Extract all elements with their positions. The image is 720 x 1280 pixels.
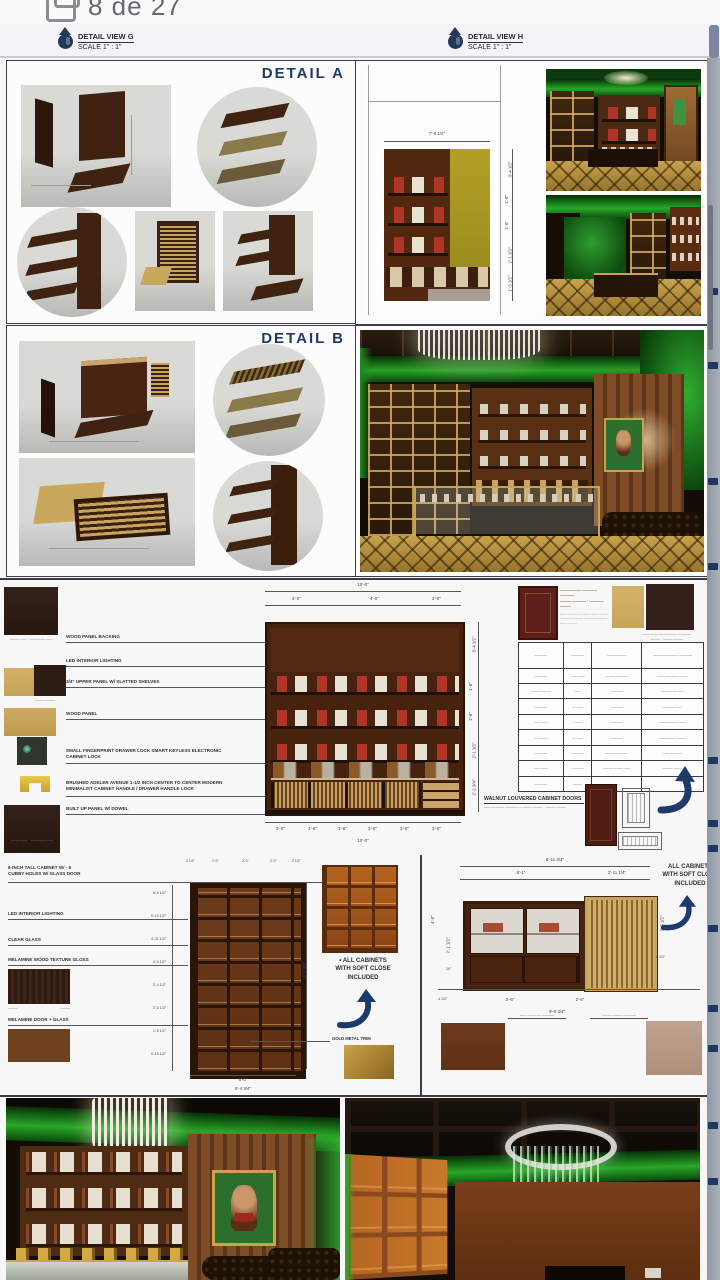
drawer-stack: [423, 782, 459, 808]
dim-label: 3'-4 1/2": [508, 161, 513, 177]
render-photo-bottom-right: [345, 1098, 700, 1280]
divider: [0, 56, 720, 58]
exploded-view-image: [135, 211, 215, 311]
soft-close-note: ALL CABINETS WITH SOFT CLOSE INCLUDED: [650, 863, 707, 888]
scroll-mark: [708, 820, 718, 827]
annotation: BRUSHED ADELER AVENUE 1-1/2 INCH CENTER …: [66, 780, 231, 792]
scroll-mark: [708, 478, 718, 485]
material-swatch: [4, 587, 58, 635]
annotation: MELAMINE WOOD TEXTURE GLOSS: [8, 957, 89, 963]
tall-cabinet-elevation: [190, 883, 306, 1079]
scroll-mark: [708, 1178, 718, 1185]
table-header: ——————: [592, 643, 642, 668]
swatch-caption-text: ———: [8, 1006, 18, 1011]
annotation: 6-INCH TALL CABINET W/ - 6 CUBBY HOLES W…: [8, 865, 168, 877]
table-header: ————: [519, 643, 564, 668]
chandelier: [92, 1098, 170, 1152]
annotation: WOOD PANEL BACKING: [66, 634, 256, 640]
dim-label: 6'-9 1/2": [126, 891, 166, 895]
material-swatch: [8, 1029, 70, 1062]
dim-label: 2'-2 3/4": [472, 779, 477, 795]
table-cell: ————— ———: [642, 730, 703, 744]
dim-label: 2'-6": [480, 997, 540, 1002]
table-header: ————: [564, 643, 593, 668]
annotation: BUILT UP PANEL W/ DOWEL: [66, 806, 256, 812]
dim-label: 3'-4 1/2": [472, 636, 477, 652]
table-cell: ——— ————: [592, 669, 642, 683]
bottom-elevation-band: 6-INCH TALL CABINET W/ - 6 CUBBY HOLES W…: [0, 855, 707, 1097]
pages-icon[interactable]: [46, 0, 76, 22]
scroll-mark: [708, 1005, 718, 1012]
table-cell: —————— ——: [642, 715, 703, 729]
low-cabinet-elevation: [463, 897, 651, 987]
scroll-mark: [708, 757, 718, 764]
annotation: CLEAR GLASS: [8, 937, 41, 943]
table-cell: ————— ——: [642, 684, 703, 698]
table-cell: ———— ——: [642, 699, 703, 713]
table-cell: —— ——: [519, 715, 564, 729]
dim-label: 0'-10 1/2": [126, 1052, 166, 1056]
dim-label: 4'-0": [292, 596, 301, 601]
dim-label: 10'-0": [265, 838, 461, 843]
scroll-mark: [708, 845, 718, 852]
table-cell: – ——: [564, 715, 593, 729]
middle-elevation-band: ——— —— · ————— —— ——— ——— ——— —— · —————…: [0, 578, 707, 857]
callout-label: WALNUT LOUVERED CABINET DOORS: [484, 796, 584, 804]
swatch-caption: ——— —— · ————— ——: [2, 838, 62, 843]
panel-detail-a: DETAIL A: [6, 60, 356, 324]
scroll-mark: [708, 1045, 718, 1052]
swatch-caption: —— ———— ———— — ——— ——— · ——— ———: [638, 632, 696, 642]
note-line: INCLUDED: [650, 880, 707, 888]
detail-view-scale: SCALE 1" : 1": [78, 44, 134, 51]
table-cell: ————: [519, 699, 564, 713]
table-cell: ——— ————: [592, 746, 642, 760]
wall-unit-elevation: [265, 622, 465, 816]
fingerprint-lock-photo: [17, 737, 47, 765]
render-photo-bottom-left: [6, 1098, 340, 1280]
exploded-view-image: [213, 461, 323, 571]
exploded-view-image: [19, 341, 195, 453]
dim-label: 2'-0": [212, 859, 219, 863]
swatch-caption: ——— —— · ————— ——: [2, 637, 60, 642]
dim-label: 2'-11 1/4": [584, 870, 650, 875]
table-cell: ——— ——— ——: [592, 761, 642, 775]
detail-view-title: DETAIL VIEW H: [468, 32, 523, 43]
dim-label: 2'-0": [368, 826, 377, 831]
louver-panel: [585, 897, 657, 991]
table-cell: ————: [519, 777, 564, 791]
detail-view-title: DETAIL VIEW G: [78, 32, 134, 43]
table-cell: ————: [519, 746, 564, 760]
detail-marker-icon: [58, 34, 73, 49]
table-cell: — — ——: [564, 669, 593, 683]
material-swatch: [612, 586, 644, 628]
spec-title2: ——— ———— · ———— ———: [560, 599, 610, 610]
dim-label: 6'-4 3/4": [182, 1086, 304, 1091]
material-swatch: [4, 668, 34, 696]
cabinet-render-thumb: [322, 865, 398, 953]
drawer-outline-drawing: [618, 832, 662, 850]
swatch-caption: ——————: [8, 1006, 70, 1011]
wood-panel-wall: [345, 1154, 447, 1280]
curved-arrow-icon: [655, 766, 697, 814]
cabinet-handle-render: [20, 776, 50, 792]
walnut-door-image: [585, 784, 617, 846]
dim-label: 4'-11 1/2": [126, 937, 166, 941]
display-counter: [6, 1260, 202, 1280]
swatch-caption: ——— ———: [20, 698, 70, 703]
scroll-mark: [708, 925, 718, 932]
annotation: MELAMINE DOOR + GLASS: [8, 1017, 69, 1023]
annotation: LED INTERIOR LIGHTING: [66, 658, 256, 664]
dim-label: 6'-1": [460, 870, 582, 875]
table-cell: – ———: [564, 761, 593, 775]
walnut-doors-callout: WALNUT LOUVERED CABINET DOORS —— ———— ——…: [484, 796, 584, 810]
exploded-view-image: [21, 85, 171, 207]
dim-label: 2'-0": [432, 826, 441, 831]
detail-a-label: DETAIL A: [262, 65, 345, 82]
dim-label: 2'-1 1/2": [508, 247, 513, 263]
render-photo: [546, 195, 701, 316]
louver-doors: [271, 782, 421, 808]
cigar-shelf-wall: [20, 1146, 188, 1256]
dim-label: 7'-0 1/2": [384, 131, 490, 136]
table-cell: — ——: [564, 699, 593, 713]
annotation: LED INTERIOR LIGHTING: [8, 911, 64, 917]
annotation: 3/4" UPPER PANEL W/ SLATTED SHELVES: [66, 679, 256, 685]
dim-label: 4 1/2": [438, 997, 447, 1001]
curved-arrow-icon: [334, 989, 378, 1029]
dim-label: 4'-0": [430, 915, 435, 924]
dim-label: 1'-6": [504, 195, 509, 204]
walnut-door-swatch: [518, 586, 558, 640]
panel-detail-views: 7'-0 1/2" 3'-4 1/2" 1'-6" 1'-6" 2'-1 1/2…: [355, 60, 709, 325]
dim-label: 2'-1 1/2": [446, 937, 451, 953]
material-swatch: [441, 1023, 505, 1070]
material-swatch: [8, 969, 70, 1004]
dim-label: 2 1/2": [186, 859, 195, 863]
dim-label: 3'-4 1/2": [126, 983, 166, 987]
page-indicator: 8 de 27: [88, 0, 182, 22]
gold-metal-swatch: [344, 1045, 394, 1079]
dim-label: 1'-6": [504, 221, 509, 230]
table-cell: — ——: [564, 730, 593, 744]
callout-label: —— ——— — ————: [508, 1013, 566, 1019]
table-cell: ————: [592, 715, 642, 729]
detail-view-scale: SCALE 1" : 1": [468, 44, 523, 51]
dim-label: 4'-0": [370, 596, 379, 601]
exploded-view-image: [19, 458, 195, 566]
dim-label: 10": [446, 967, 451, 971]
callout-label: ——— ——— ————: [590, 1013, 648, 1019]
pdf-viewer: 8 de 27 DETAIL VIEW G SCALE 1" : 1" DETA…: [0, 0, 720, 1280]
viewer-toolbar: 8 de 27: [0, 0, 720, 24]
dim-label: 6'-0": [190, 1077, 296, 1082]
dim-label: 1'-3 1/2": [508, 275, 513, 291]
note-line: INCLUDED: [316, 974, 410, 982]
dim-label: 2'-5 1/2": [126, 1006, 166, 1010]
dim-label: 2'-0": [270, 859, 277, 863]
table-cell: — ———: [519, 730, 564, 744]
dim-label: 1'-9 1/2": [126, 1029, 166, 1033]
soft-close-note: • ALL CABINETS WITH SOFT CLOSE INCLUDED: [316, 957, 410, 982]
material-swatch: [34, 665, 66, 696]
divider: [420, 855, 422, 1095]
dim-label: 1'-6": [468, 712, 473, 721]
exploded-view-image: [17, 207, 127, 317]
dim-label: 1'-6": [468, 682, 473, 691]
note-line: • ALL CABINETS: [316, 957, 410, 965]
table-cell: ——: [564, 684, 593, 698]
scroll-mark: [708, 362, 718, 369]
sofa: [268, 1248, 340, 1280]
dim-label: 10'-0": [265, 582, 461, 587]
dim-label: 2'-0": [276, 826, 285, 831]
dim-label: 2'-1 1/2": [472, 742, 477, 758]
cabinet-elevation-drawing: 7'-0 1/2" 3'-4 1/2" 1'-6" 1'-6" 2'-1 1/2…: [364, 65, 542, 317]
dim-label: 6'-9 3/4": [302, 961, 307, 977]
render-photo: [546, 69, 701, 191]
table-cell: ——— ———: [519, 684, 564, 698]
annotation: SMALL FINGERPRINT DRAWER LOCK SMART KEYL…: [66, 748, 231, 760]
exploded-view-image: [213, 344, 325, 456]
table-cell: ————: [592, 684, 642, 698]
material-swatch: [4, 805, 60, 853]
table-header: ———————— ————: [642, 643, 703, 668]
dim-label: 2'-0": [242, 859, 249, 863]
cabinet-front: [384, 149, 490, 301]
annotation: WOOD PANEL: [66, 711, 256, 717]
detail-marker-icon: [448, 34, 463, 49]
panel-main-render: [355, 325, 709, 577]
table-cell: —— ——: [564, 746, 593, 760]
note-line: ALL CABINETS: [650, 863, 707, 871]
dim-label: 8'-11 3/4": [460, 857, 650, 862]
door-outline-drawing: [622, 788, 650, 828]
table-cell: —— ———— ———: [642, 669, 703, 683]
scroll-mark: [708, 1122, 718, 1129]
swatch-caption-text: ———: [60, 1006, 70, 1011]
dim-label: 1'-6": [308, 826, 317, 831]
dim-label: 4'-0 1/2": [126, 960, 166, 964]
scroll-mark: [708, 563, 718, 570]
dim-label: 2'-0": [400, 826, 409, 831]
callout-sublabel: —— ———— ———— — ——— ——— · ——— ———: [484, 805, 584, 810]
table-cell: —— ————: [642, 746, 703, 760]
dim-label: 1'-6": [338, 826, 347, 831]
table-cell: ————: [519, 669, 564, 683]
render-photo-large: [360, 330, 704, 572]
note-line: WITH SOFT CLOSE: [650, 871, 707, 879]
spec-title: —————— ———— ————: [560, 588, 610, 599]
material-swatch: [646, 1021, 702, 1075]
dim-label: 2'-0": [432, 596, 441, 601]
sheet-header-row: DETAIL VIEW G SCALE 1" : 1" DETAIL VIEW …: [0, 24, 720, 56]
material-swatch: [4, 708, 56, 736]
dim-label: 6 1/2": [656, 955, 665, 959]
dim-label: 2'-6": [550, 997, 610, 1002]
note-line: WITH SOFT CLOSE: [316, 965, 410, 973]
dim-label: 2 1/2": [292, 859, 301, 863]
scrollbar-top-tab[interactable]: [709, 25, 719, 58]
table-cell: ————: [592, 699, 642, 713]
dim-label: 3'-0 1/2": [660, 915, 665, 931]
spec-title-block: —————— ———— ———— ——— ———— · ———— ——— —— …: [560, 588, 610, 626]
table-cell: —— ——: [519, 761, 564, 775]
exploded-view-image: [197, 87, 317, 207]
spec-paragraph: —— ———— ——— —— ——— ———— ——— ——— ———— —— …: [560, 612, 610, 626]
material-swatch: [646, 584, 694, 630]
exploded-view-image: [223, 211, 313, 311]
gold-trim-label: GOLD METAL TRIM: [332, 1036, 371, 1042]
portrait-frame: [212, 1170, 276, 1246]
scrollbar-thumb[interactable]: [708, 205, 713, 350]
dim-label: 5'-10 1/2": [126, 914, 166, 918]
table-cell: ————: [592, 730, 642, 744]
panel-detail-b: DETAIL B: [6, 325, 356, 577]
annotation-line: CUBBY HOLES W/ GLASS DOOR: [8, 871, 168, 877]
